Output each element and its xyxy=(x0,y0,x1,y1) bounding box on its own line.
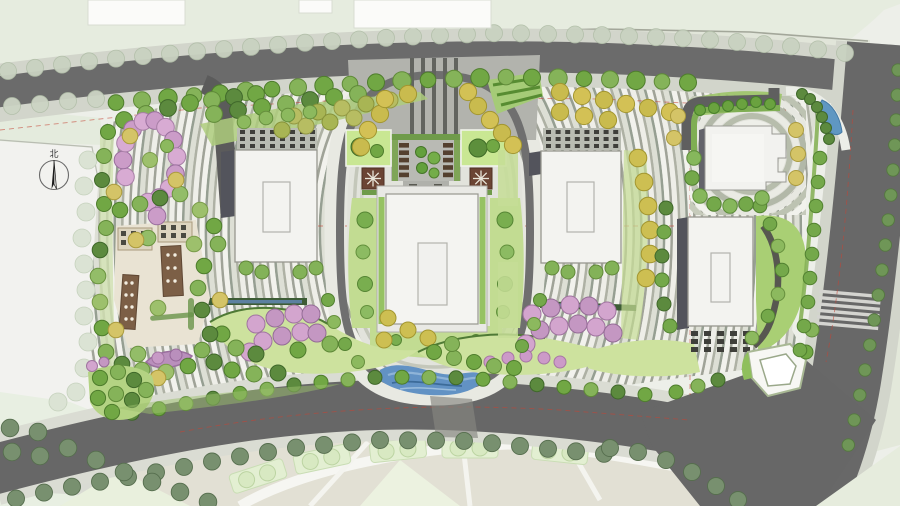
svg-text:北: 北 xyxy=(49,149,58,159)
